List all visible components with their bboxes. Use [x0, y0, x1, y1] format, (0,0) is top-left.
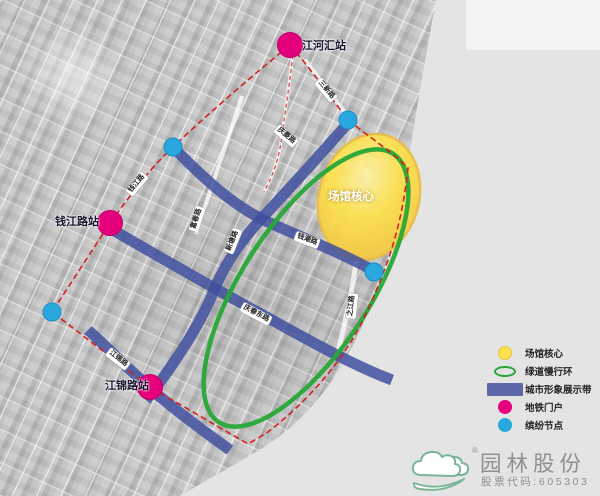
legend-item-belt: 城市形象展示带 — [487, 380, 592, 398]
metro-station-label: 江河汇站 — [302, 37, 346, 53]
venue-swatch-icon — [487, 346, 523, 360]
legend-label: 场馆核心 — [525, 346, 563, 360]
colorful-node-dot — [339, 111, 358, 130]
venue-core-label: 场馆核心 — [328, 188, 374, 204]
node-shape — [498, 418, 512, 432]
belt-swatch-icon — [487, 383, 523, 396]
metro-swatch-icon — [487, 400, 523, 414]
metro-station-label: 钱江路站 — [55, 213, 99, 229]
colorful-node-dot — [164, 138, 183, 157]
colorful-node-dot — [365, 263, 384, 282]
metro-station-dot — [277, 32, 303, 58]
legend-label: 缤纷节点 — [525, 418, 563, 432]
legend-item-metro: 地铁门户 — [487, 398, 592, 416]
stock-code: 股票代码:605303 — [481, 474, 590, 489]
water-highlight — [466, 0, 600, 50]
legend-item-venue: 场馆核心 — [487, 344, 592, 362]
belt-shape — [487, 383, 523, 396]
greenway-swatch-icon — [487, 366, 523, 377]
venue-shape — [498, 346, 512, 360]
metro-station-label: 江锦路站 — [105, 377, 149, 393]
cloud-logo-icon — [408, 442, 474, 492]
metro-station-dot — [97, 210, 123, 236]
greenway-shape — [494, 366, 516, 377]
colorful-node-dot — [43, 303, 62, 322]
legend-label: 城市形象展示带 — [525, 382, 592, 396]
legend-item-greenway: 绿道慢行环 — [487, 362, 592, 380]
company-logo: ® 园林股份 股票代码:605303 — [408, 442, 600, 496]
legend: 场馆核心绿道慢行环城市形象展示带地铁门户缤纷节点 — [487, 344, 592, 434]
registered-mark: ® — [472, 446, 478, 455]
legend-label: 地铁门户 — [525, 400, 563, 414]
node-swatch-icon — [487, 418, 523, 432]
metro-shape — [498, 400, 512, 414]
planning-map: 三新路庆菱路钱江路富春路新塘路钱潮路庆春东路之江路江锦路江河汇站钱江路站江锦路站… — [0, 0, 600, 496]
legend-label: 绿道慢行环 — [525, 364, 573, 378]
legend-item-node: 缤纷节点 — [487, 416, 592, 434]
